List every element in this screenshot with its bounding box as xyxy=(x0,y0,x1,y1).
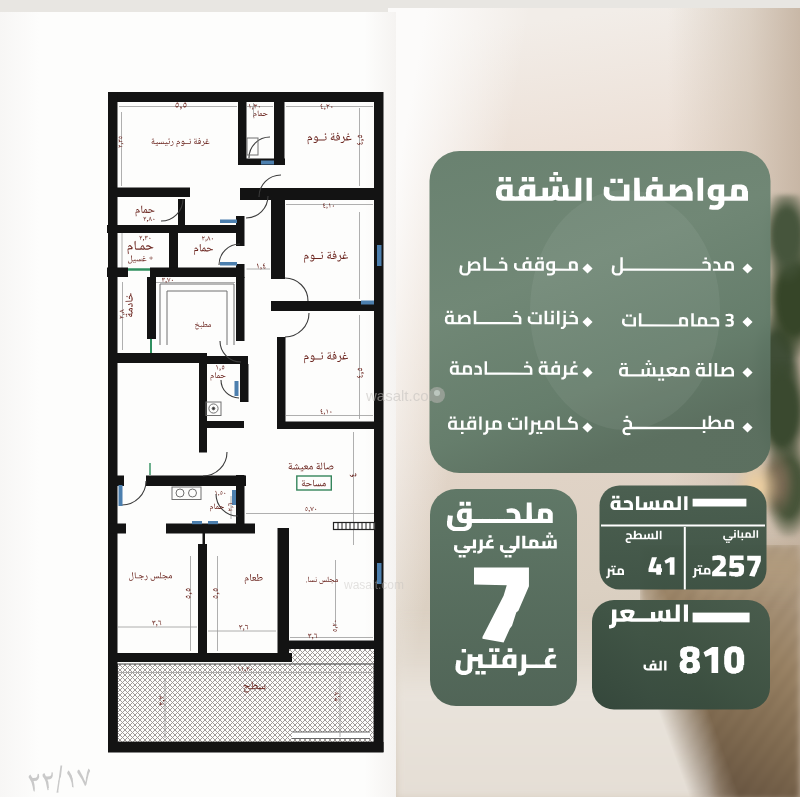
svg-text:wasalt.com: wasalt.com xyxy=(343,578,404,592)
